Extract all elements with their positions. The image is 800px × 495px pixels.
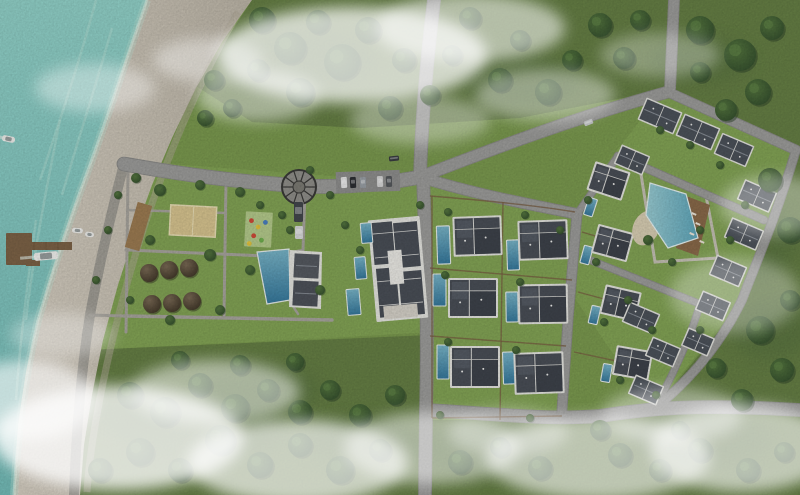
cloud bbox=[153, 38, 263, 82]
cloud bbox=[130, 360, 300, 424]
cloud bbox=[670, 257, 800, 333]
cloud bbox=[35, 64, 155, 112]
cloud bbox=[600, 33, 720, 77]
cloud bbox=[350, 96, 490, 144]
cloud bbox=[10, 313, 114, 357]
aerial-site-plan-render bbox=[0, 0, 800, 495]
cloud bbox=[602, 387, 742, 443]
aerial-site-plan bbox=[0, 0, 800, 495]
cloud bbox=[475, 69, 615, 121]
